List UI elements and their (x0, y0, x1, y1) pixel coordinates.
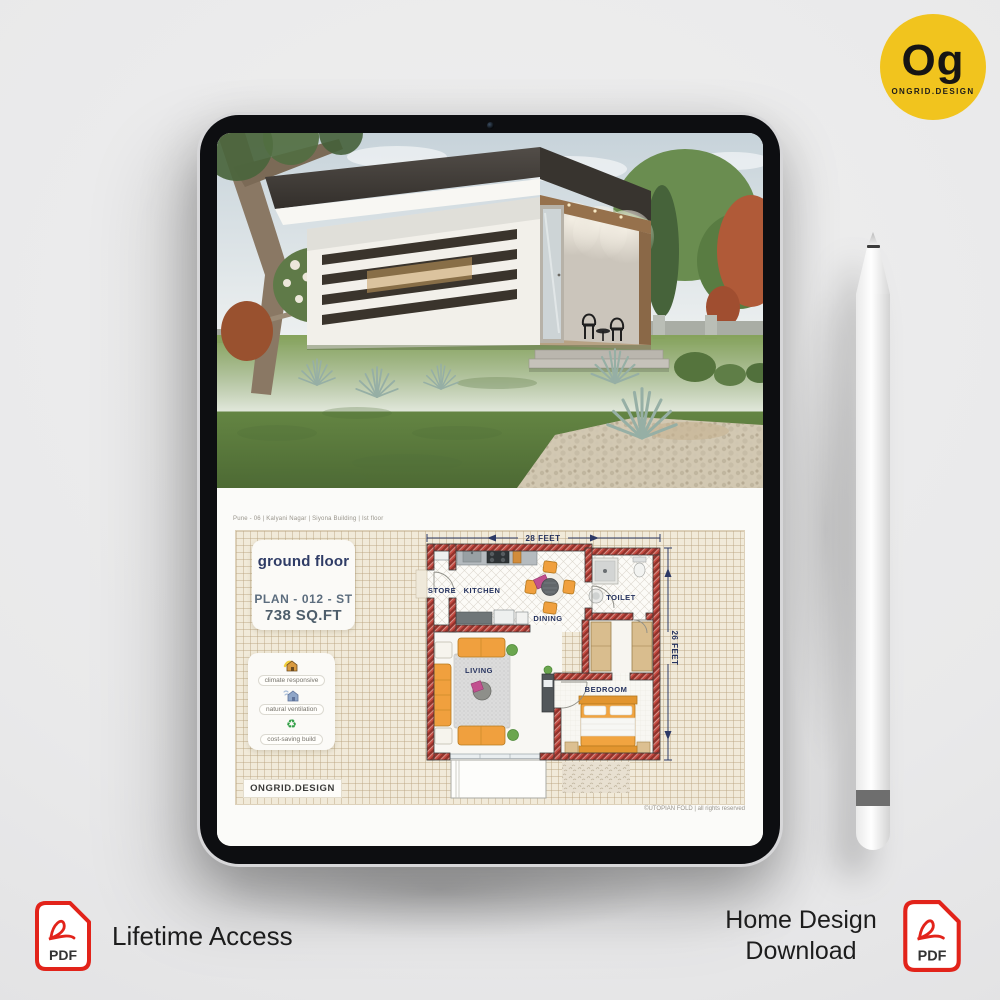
tablet-device: Pune - 06 | Kalyani Nagar | Siyona Build… (197, 112, 783, 867)
pencil-tip (868, 232, 878, 245)
feature-label: climate responsive (258, 675, 326, 686)
feature-label: natural ventilation (259, 704, 324, 715)
pencil-body (856, 294, 890, 850)
lifetime-access-label: Lifetime Access (112, 921, 293, 952)
feature-ventilation: natural ventilation (259, 688, 324, 715)
pdf-label: PDF (918, 949, 947, 965)
home-design-line2: Download (715, 936, 887, 967)
pdf-file-icon: PDF (33, 900, 93, 972)
red-bush (221, 301, 273, 361)
room-label-store: STORE (428, 586, 456, 595)
plan-code: PLAN - 012 - ST (252, 592, 355, 606)
plan-header-note: Pune - 06 | Kalyani Nagar | Siyona Build… (233, 516, 383, 522)
tablet-screen: Pune - 06 | Kalyani Nagar | Siyona Build… (217, 133, 763, 846)
pencil-taper (856, 248, 890, 294)
climate-house-icon (283, 659, 299, 673)
pencil-grip-band (856, 790, 890, 806)
room-label-dining: DINING (533, 614, 562, 623)
ventilation-house-icon (283, 688, 299, 702)
porch-column (639, 231, 651, 345)
feature-label: cost-saving build (260, 734, 322, 745)
gravel-texture (562, 762, 630, 793)
plan-title-card: ground floor PLAN - 012 - ST 738 SQ.FT (252, 540, 355, 630)
pdf-file-icon: PDF (902, 899, 962, 973)
room-label-toilet: TOILET (606, 593, 636, 602)
plan-area: 738 SQ.FT (252, 607, 355, 624)
patio (451, 760, 546, 798)
floorplan-page: Pune - 06 | Kalyani Nagar | Siyona Build… (217, 488, 763, 846)
logo-monogram: Og (901, 39, 964, 83)
feature-climate: climate responsive (258, 659, 326, 686)
home-design-download-badge: Home Design Download PDF (715, 899, 962, 973)
home-design-line1: Home Design (715, 905, 887, 936)
logo-brand-text: ONGRID.DESIGN (891, 87, 974, 96)
dimension-width-label: 28 FEET (525, 534, 560, 543)
features-card: climate responsive natural ventilation (248, 653, 335, 750)
home-design-label: Home Design Download (715, 905, 887, 967)
recycle-icon: ♻ (286, 718, 297, 732)
stylus-pencil (856, 232, 890, 850)
front-camera-icon (487, 122, 494, 129)
room-label-bedroom: BEDROOM (585, 685, 628, 694)
entry-stoop (416, 570, 427, 598)
pencil-tip-ring (867, 245, 880, 248)
glass-door (540, 205, 564, 343)
plan-copyright: ©UTOPIAN FOLD | all rights reserved (644, 806, 745, 812)
dimension-depth-label: 26 FEET (670, 630, 679, 665)
room-label-living: LIVING (465, 666, 493, 675)
porch (540, 195, 654, 350)
lifetime-access-badge: PDF Lifetime Access (33, 900, 293, 972)
brand-logo: Og ONGRID.DESIGN (880, 14, 986, 120)
room-label-kitchen: KITCHEN (464, 586, 501, 595)
pdf-label: PDF (49, 947, 77, 963)
plan-title: ground floor (252, 553, 355, 570)
house-render-image (217, 133, 763, 488)
ongrid-badge: ONGRID.DESIGN (243, 779, 342, 798)
feature-cost: ♻ cost-saving build (260, 718, 322, 745)
product-mockup: Og ONGRID.DESIGN (0, 0, 1000, 1000)
tv-unit (542, 674, 554, 712)
house (265, 147, 669, 372)
patio-glass-door (450, 754, 540, 759)
